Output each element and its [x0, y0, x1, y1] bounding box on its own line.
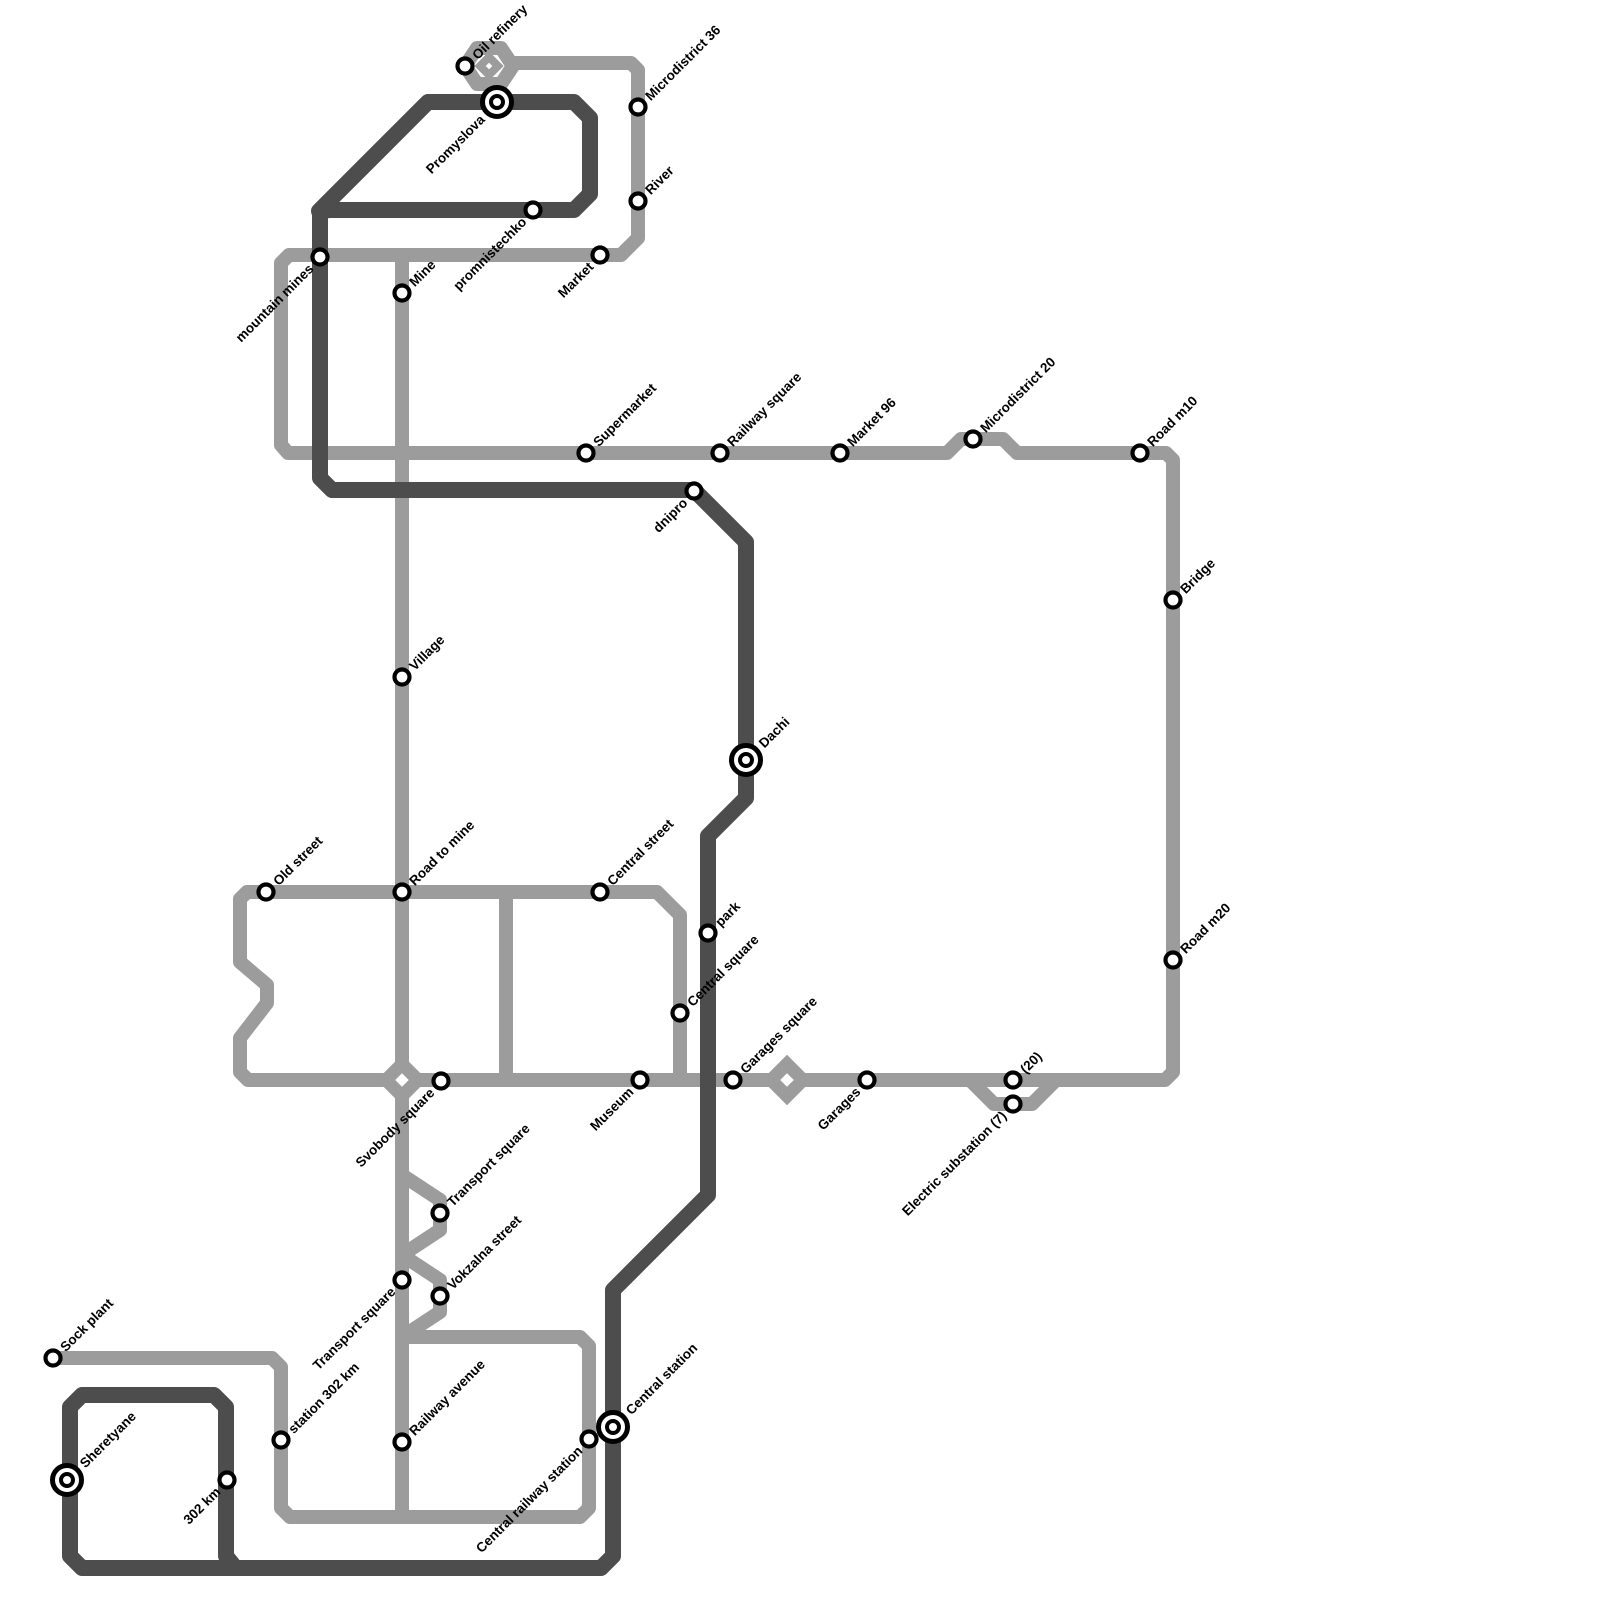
svobody-square-depot-diamond-icon [386, 1064, 418, 1096]
station-marker [395, 1435, 410, 1450]
station-marker [434, 1074, 449, 1089]
station-label: Central railway station [473, 1443, 585, 1555]
station-label: Sock plant [57, 1295, 116, 1354]
terminal-marker-inner [491, 96, 503, 108]
station-label: dnipro [650, 495, 690, 535]
station-marker [46, 1351, 61, 1366]
station-marker [631, 100, 646, 115]
station-label: Railway square [724, 369, 804, 449]
transit-map-page: Oil refineryMicrodistrict 36RiverMarketm… [0, 0, 1600, 1600]
station-marker [395, 286, 410, 301]
station-label: Microdistrict 36 [642, 22, 724, 104]
station-label: Railway avenue [406, 1356, 488, 1438]
station-marker [593, 885, 608, 900]
station-label: Transport square [310, 1284, 399, 1373]
station-label: River [642, 162, 677, 197]
station-marker [593, 248, 608, 263]
station-marker [220, 1473, 235, 1488]
station-label: Market 96 [844, 394, 899, 449]
station-label: Vokzalna street [444, 1212, 524, 1292]
station-label: Sheretyane [77, 1408, 139, 1470]
station-marker [395, 1273, 410, 1288]
terminal-marker-inner [61, 1474, 73, 1486]
station-marker [313, 250, 328, 265]
station-label: Market [555, 259, 597, 301]
station-marker [259, 885, 274, 900]
station-label: Central station [623, 1340, 700, 1417]
station-transport-square: Transport square [433, 1121, 534, 1221]
station-marker [458, 59, 473, 74]
station-marker [1006, 1073, 1021, 1088]
station-marker [1166, 953, 1181, 968]
station-marker [579, 446, 594, 461]
light-route-segment [402, 1337, 589, 1517]
station-label: Microdistrict 20 [977, 354, 1058, 435]
station-marker [726, 1073, 741, 1088]
station-marker [526, 203, 541, 218]
station-label: Dachi [756, 714, 793, 751]
station-label: Road m10 [1144, 393, 1200, 449]
station-marker [395, 885, 410, 900]
station-marker [673, 1006, 688, 1021]
terminal-marker-inner [740, 754, 752, 766]
station-transport-square: Transport square [310, 1273, 410, 1373]
station-marker [1006, 1097, 1021, 1112]
station-label: 302 km [180, 1484, 223, 1527]
station-marker [433, 1206, 448, 1221]
station-marker [860, 1073, 875, 1088]
station-label: Garages [815, 1084, 864, 1133]
station-central-railway-station: Central railway station [473, 1432, 596, 1556]
station-marker [687, 484, 702, 499]
station-marker [1166, 593, 1181, 608]
station-label: Bridge [1177, 555, 1218, 596]
station-electric-substation-7: Electric substation (7) [899, 1097, 1020, 1219]
garages-square-depot-diamond-icon [771, 1064, 803, 1096]
station-label: Old street [270, 833, 326, 889]
dark-route-segment [319, 102, 590, 211]
station-label: Promyslova [423, 112, 488, 177]
station-marker [582, 1432, 597, 1447]
terminal-marker-inner [607, 1421, 619, 1433]
station-marker [833, 446, 848, 461]
station-label: Electric substation (7) [899, 1108, 1009, 1218]
station-label: station 302 km [285, 1360, 362, 1437]
station-marker [631, 194, 646, 209]
station-label: Road m20 [1177, 900, 1233, 956]
station-label: Museum [587, 1084, 636, 1133]
station-label: Transport square [444, 1121, 533, 1210]
station-label: Supermarket [590, 380, 659, 449]
station-label: park [712, 898, 743, 929]
station-marker [433, 1289, 448, 1304]
station-label: Central street [604, 816, 677, 889]
station-marker [395, 670, 410, 685]
station-label: Road to mine [406, 817, 477, 888]
station-label: Village [406, 632, 448, 674]
station-label: (20) [1017, 1049, 1045, 1077]
station-marker [1133, 446, 1148, 461]
station-marker [633, 1073, 648, 1088]
station-marker [966, 432, 981, 447]
station-marker [713, 446, 728, 461]
oil-refinery-depot-diamond-icon [480, 57, 498, 75]
station-label: Central square [684, 932, 762, 1010]
station-marker [274, 1433, 289, 1448]
station-microdistrict-20: Microdistrict 20 [966, 354, 1059, 446]
map-canvas: Oil refineryMicrodistrict 36RiverMarketm… [0, 0, 1600, 1600]
station-marker [701, 926, 716, 941]
